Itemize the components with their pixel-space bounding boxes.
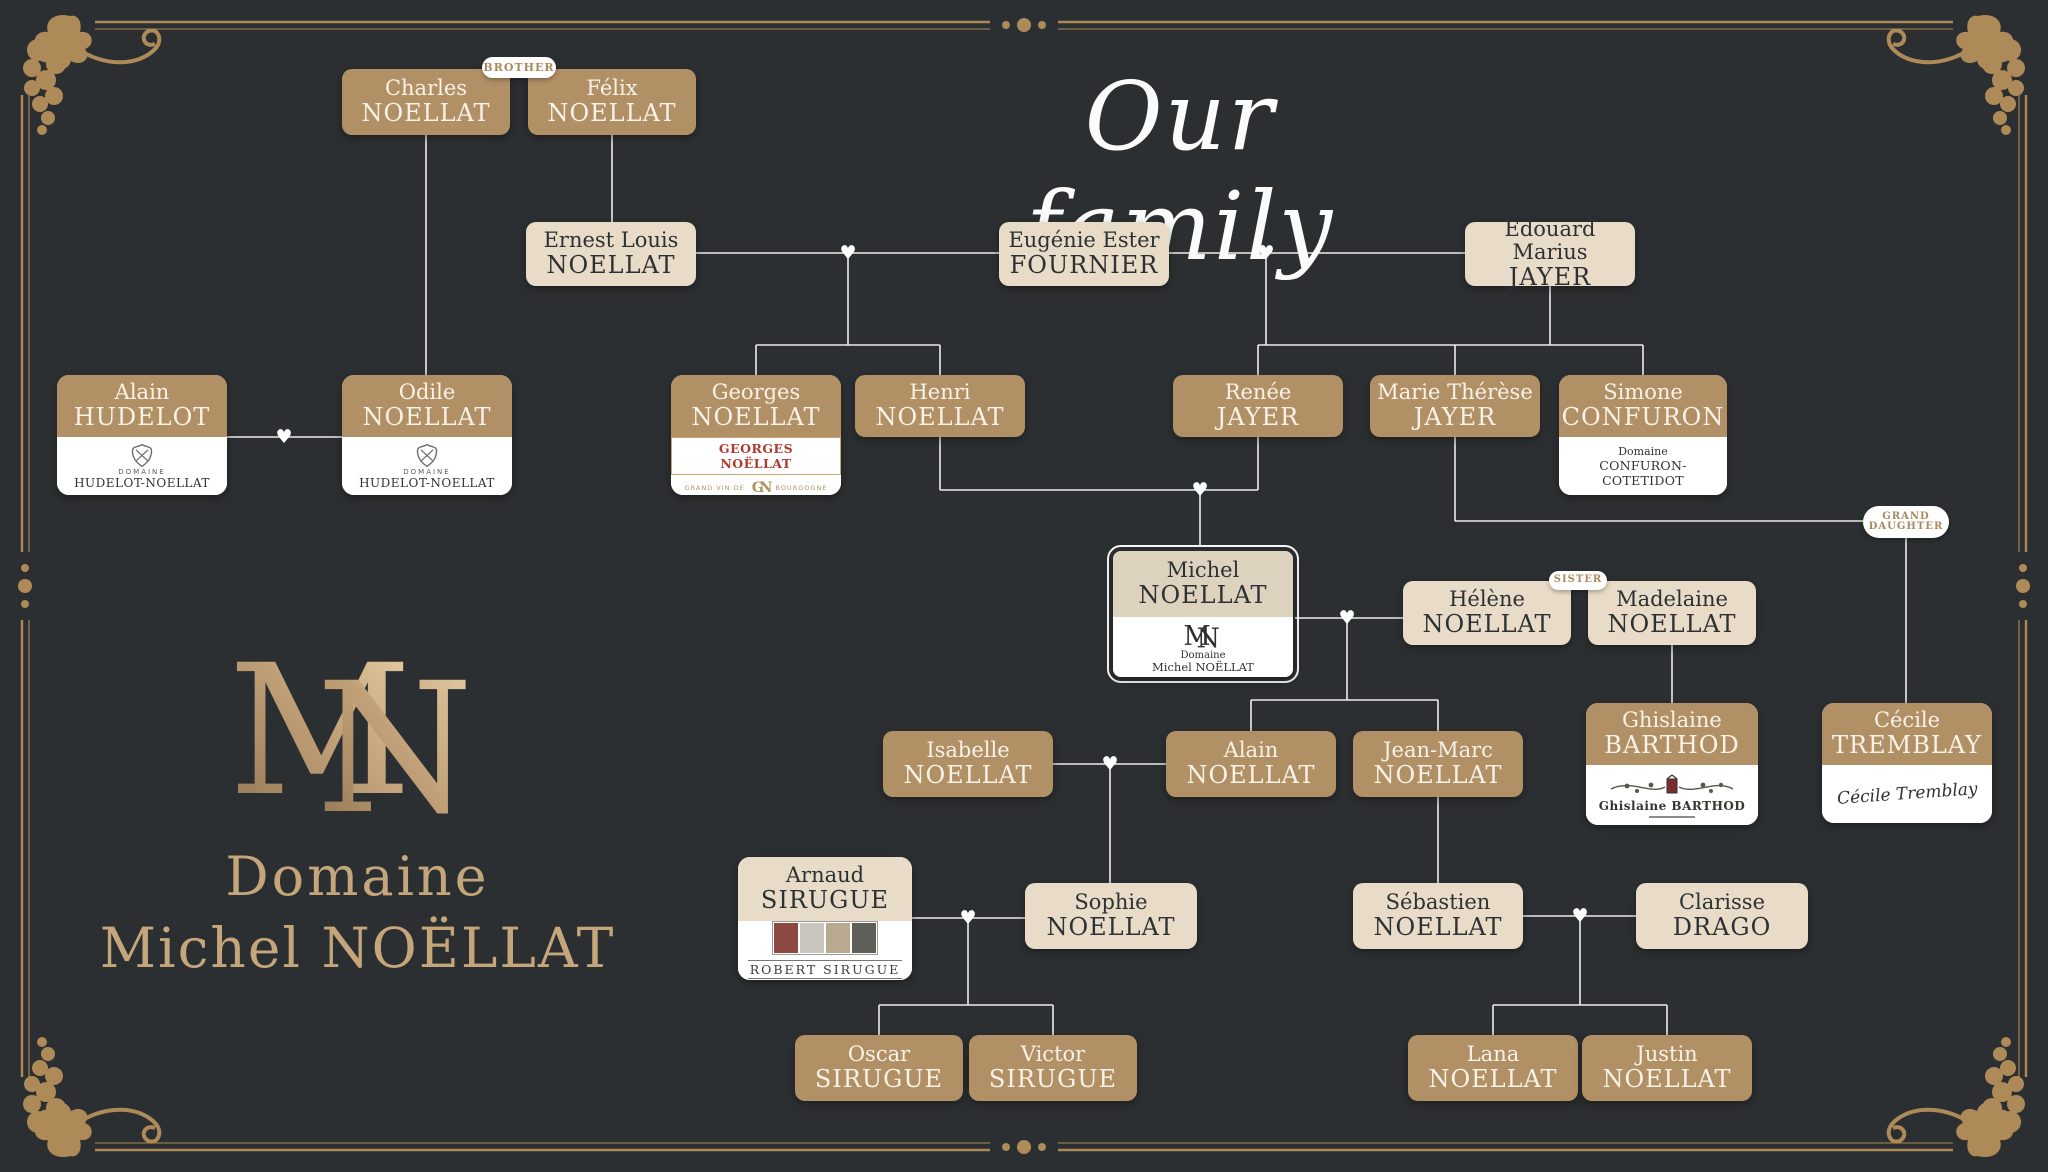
svg-text:N: N [316, 645, 474, 850]
brand-domaine: Domaine [95, 845, 620, 908]
person-last-name: NOELLAT [875, 404, 1004, 430]
person-first-name: Simone [1603, 381, 1683, 404]
heart-icon: ♥ [273, 426, 295, 448]
person-alain-hudelot: Alain HUDELOT DOMAINE HUDELOT-NOELLAT [57, 375, 227, 495]
label-domaine-name: CONFURON-COTETIDOT [1559, 458, 1727, 488]
georges-wine-label: GEORGES NOËLLAT [671, 437, 841, 475]
person-first-name: Ghislaine [1622, 709, 1722, 732]
person-last-name: NOELLAT [1186, 762, 1315, 788]
person-arnaud-sirugue: Arnaud SIRUGUE ROBERT SIRUGUE [738, 857, 912, 980]
person-jean-marc-noellat: Jean-Marc NOELLAT [1353, 731, 1523, 797]
brand-name: Michel NOËLLAT [95, 916, 620, 980]
person-lana-noellat: Lana NOELLAT [1408, 1035, 1578, 1101]
person-first-name: Georges [712, 381, 801, 404]
heart-icon: ♥ [1189, 479, 1211, 501]
person-justin-noellat: Justin NOELLAT [1582, 1035, 1752, 1101]
person-first-name: Lana [1467, 1043, 1520, 1066]
person-simone-confuron: Simone CONFURON Domaine CONFURON-COTETID… [1559, 375, 1727, 495]
person-last-name: NOELLAT [547, 100, 676, 126]
person-clarisse-drago: Clarisse DRAGO [1636, 883, 1808, 949]
label-domaine-name: Ghislaine BARTHOD [1599, 799, 1746, 813]
person-sophie-noellat: Sophie NOELLAT [1025, 883, 1197, 949]
person-first-name: Eugénie Ester [1008, 229, 1159, 252]
heart-icon: ♥ [1569, 905, 1591, 927]
person-marie-therese-jayer: Marie Thérèse JAYER [1370, 375, 1540, 437]
person-last-name: NOELLAT [361, 100, 490, 126]
person-last-name: NOELLAT [1138, 582, 1267, 608]
person-first-name: Clarisse [1679, 891, 1765, 914]
heart-icon: ♥ [837, 242, 859, 264]
heart-icon: ♥ [957, 907, 979, 929]
brand-mn-monogram-icon: M N [228, 615, 498, 850]
person-last-name: NOELLAT [903, 762, 1032, 788]
person-eugenie-ester-fournier: Eugénie Ester FOURNIER [999, 222, 1169, 286]
person-first-name: Renée [1225, 381, 1292, 404]
person-first-name: Alain [1224, 739, 1279, 762]
person-first-name: Cécile [1874, 709, 1940, 732]
person-helene-noellat: Hélène NOELLAT [1403, 581, 1571, 645]
person-isabelle-noellat: Isabelle NOELLAT [883, 731, 1053, 797]
person-michel-noellat-highlight-ring: Michel NOELLAT M N Domaine Michel NOËLLA… [1107, 545, 1299, 683]
person-ghislaine-barthod: Ghislaine BARTHOD Ghislaine BARTHOD [1586, 703, 1758, 825]
person-last-name: NOELLAT [1607, 611, 1736, 637]
badge-label: SISTER [1554, 575, 1603, 586]
person-first-name: Félix [586, 77, 637, 100]
label-domaine: DOMAINE [403, 468, 450, 476]
person-last-name: NOELLAT [362, 404, 491, 430]
relation-badge-brother: BROTHER [482, 57, 556, 78]
badge-label: BROTHER [483, 62, 554, 74]
label-domaine: Domaine [1180, 650, 1225, 661]
person-renee-jayer: Renée JAYER [1173, 375, 1343, 437]
barthod-caption-bar [1649, 816, 1695, 818]
person-henri-noellat: Henri NOELLAT [855, 375, 1025, 437]
person-cecile-tremblay: Cécile TREMBLAY Cécile Tremblay [1822, 703, 1992, 823]
person-first-name: Edouard Marius [1465, 218, 1635, 264]
person-first-name: Alain [115, 381, 170, 404]
person-first-name: Madelaine [1616, 588, 1728, 611]
person-last-name: NOELLAT [1046, 914, 1175, 940]
hudelot-crest-icon [127, 442, 157, 468]
person-last-name: SIRUGUE [815, 1066, 943, 1092]
person-first-name: Isabelle [926, 739, 1009, 762]
person-oscar-sirugue: Oscar SIRUGUE [795, 1035, 963, 1101]
person-last-name: JAYER [1217, 404, 1299, 430]
person-first-name: Jean-Marc [1383, 739, 1493, 762]
person-first-name: Oscar [848, 1043, 910, 1066]
person-first-name: Hélène [1449, 588, 1525, 611]
person-last-name: NOELLAT [1428, 1066, 1557, 1092]
person-sebastien-noellat: Sébastien NOELLAT [1353, 883, 1523, 949]
label-grand-vin: GRAND VIN DE [685, 484, 745, 492]
badge-label: DAUGHTER [1869, 522, 1944, 533]
heart-icon: ♥ [1255, 242, 1277, 264]
person-last-name: TREMBLAY [1832, 732, 1982, 758]
person-last-name: JAYER [1414, 404, 1496, 430]
relation-badge-sister: SISTER [1549, 571, 1607, 590]
person-georges-noellat: Georges NOELLAT GEORGES NOËLLAT GRAND VI… [671, 375, 841, 495]
person-victor-sirugue: Victor SIRUGUE [969, 1035, 1137, 1101]
gn-monogram-icon: GN [752, 480, 769, 495]
relation-badge-grand-daughter: GRAND DAUGHTER [1863, 506, 1949, 538]
label-bourgogne: BOURGOGNE [775, 484, 827, 492]
label-domaine: Domaine [1618, 445, 1668, 458]
label-domaine-name: HUDELOT-NOELLAT [74, 476, 210, 490]
person-first-name: Henri [909, 381, 970, 404]
person-ernest-louis-noellat: Ernest Louis NOELLAT [526, 222, 696, 286]
person-last-name: CONFURON [1562, 404, 1725, 430]
person-first-name: Arnaud [786, 864, 864, 887]
person-last-name: NOELLAT [1602, 1066, 1731, 1092]
person-last-name: NOELLAT [1373, 762, 1502, 788]
person-first-name: Victor [1021, 1043, 1085, 1066]
brand-wordmark: Domaine Michel NOËLLAT [95, 845, 620, 980]
person-first-name: Odile [399, 381, 456, 404]
person-last-name: NOELLAT [1422, 611, 1551, 637]
person-first-name: Ernest Louis [544, 229, 679, 252]
label-domaine: DOMAINE [118, 468, 165, 476]
sirugue-photo-strip [772, 921, 878, 955]
hudelot-crest-icon [412, 442, 442, 468]
person-first-name: Justin [1636, 1043, 1697, 1066]
person-last-name: NOELLAT [546, 252, 675, 278]
person-alain-noellat: Alain NOELLAT [1166, 731, 1336, 797]
person-last-name: NOELLAT [1373, 914, 1502, 940]
person-last-name: BARTHOD [1604, 732, 1739, 758]
person-last-name: DRAGO [1673, 914, 1772, 940]
person-last-name: HUDELOT [74, 404, 211, 430]
person-madelaine-noellat: Madelaine NOELLAT [1588, 581, 1756, 645]
person-last-name: NOELLAT [691, 404, 820, 430]
person-first-name: Marie Thérèse [1377, 381, 1533, 404]
person-charles-noellat: Charles NOELLAT [342, 69, 510, 135]
heart-icon: ♥ [1336, 607, 1358, 629]
mn-monogram-icon: M N [1181, 620, 1225, 650]
label-domaine-name: ROBERT SIRUGUE [748, 960, 903, 979]
person-first-name: Sébastien [1386, 891, 1491, 914]
person-edouard-marius-jayer: Edouard Marius JAYER [1465, 222, 1635, 286]
label-domaine-name: HUDELOT-NOELLAT [359, 476, 495, 490]
person-first-name: Sophie [1074, 891, 1147, 914]
person-last-name: SIRUGUE [761, 887, 889, 913]
svg-text:N: N [1196, 623, 1219, 650]
barthod-vine-crest-icon [1607, 773, 1737, 799]
person-last-name: JAYER [1509, 264, 1591, 290]
person-michel-noellat: Michel NOELLAT M N Domaine Michel NOËLLA… [1113, 551, 1293, 677]
person-last-name: FOURNIER [1010, 252, 1159, 278]
person-last-name: SIRUGUE [989, 1066, 1117, 1092]
heart-icon: ♥ [1099, 753, 1121, 775]
family-tree-infographic: Our family Charles NOELLAT Félix NOELLAT… [0, 0, 2048, 1172]
label-domaine-name: Michel NOËLLAT [1152, 661, 1254, 675]
person-first-name: Michel [1167, 559, 1240, 582]
person-first-name: Charles [385, 77, 467, 100]
person-odile-noellat: Odile NOELLAT DOMAINE HUDELOT-NOELLAT [342, 375, 512, 495]
person-felix-noellat: Félix NOELLAT [528, 69, 696, 135]
tremblay-signature: Cécile Tremblay [1836, 779, 1978, 809]
